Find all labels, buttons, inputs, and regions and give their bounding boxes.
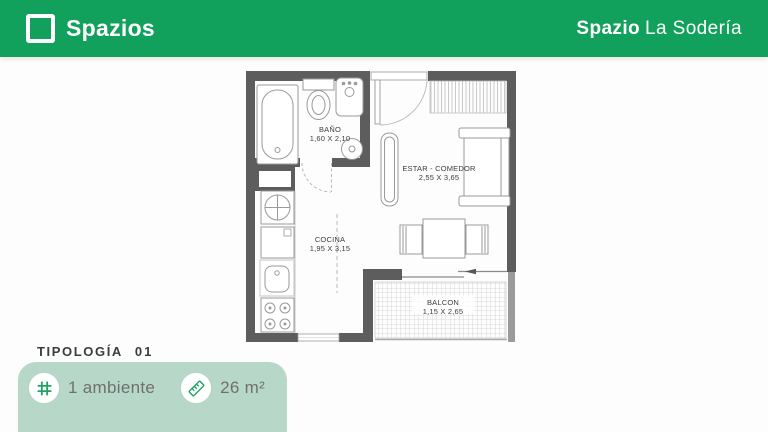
room-label-cocina: COCINA (315, 235, 345, 244)
feature-area-label: 26 m² (220, 378, 265, 398)
floor-plan: BAÑO 1,60 X 2,10 ESTAR - COMEDOR 2,55 X … (235, 60, 525, 350)
room-label-estar: ESTAR - COMEDOR (402, 164, 476, 173)
typology-label: TIPOLOGÍA01 (37, 344, 153, 359)
grid-icon (29, 373, 59, 403)
balcony-right-edge (508, 272, 515, 342)
project-prefix: Spazio (576, 18, 640, 39)
typology-text: TIPOLOGÍA (37, 344, 123, 359)
feature-ambientes: 1 ambiente (29, 373, 155, 403)
duct-shaft (259, 171, 291, 187)
room-dims-balcon: 1,15 X 2,65 (423, 307, 464, 316)
toilet (303, 79, 334, 90)
brand-logo-icon (26, 14, 55, 43)
ruler-icon (181, 373, 211, 403)
typology-number: 01 (135, 344, 153, 359)
brand-name: Spazios (66, 15, 155, 42)
room-dims-estar: 2,55 X 3,65 (419, 173, 460, 182)
kitchen-fixtures (260, 191, 339, 341)
sofa-bed (459, 128, 510, 138)
header: Spazios SpazioLa Sodería (0, 0, 768, 57)
room-label-bano: BAÑO (319, 125, 341, 134)
dining-table (423, 219, 465, 258)
room-label-balcon: BALCON (427, 298, 459, 307)
entrance-door (371, 72, 427, 125)
project-name: La Sodería (645, 18, 742, 39)
feature-ambientes-label: 1 ambiente (68, 378, 155, 398)
living-furniture (381, 128, 510, 258)
screen: Spazios SpazioLa Sodería (0, 0, 768, 432)
closet-hatch (430, 81, 506, 113)
room-dims-cocina: 1,95 X 3,15 (310, 244, 351, 253)
summary-card: 1 ambiente 26 m² (18, 362, 287, 432)
bathroom-door-arc (302, 163, 331, 192)
brand: Spazios (26, 14, 155, 43)
room-dims-bano: 1,60 X 2,10 (310, 134, 351, 143)
project-title: SpazioLa Sodería (576, 18, 742, 40)
feature-area: 26 m² (181, 373, 265, 403)
